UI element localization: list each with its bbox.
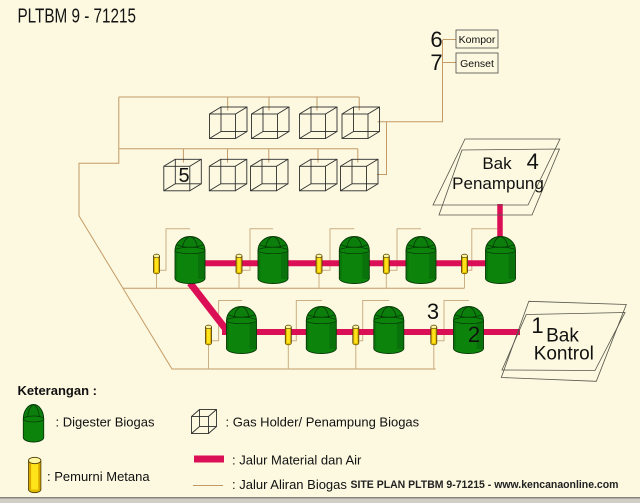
svg-text:4: 4 [527,149,539,174]
svg-text:Bak: Bak [482,154,512,173]
svg-text:1: 1 [531,313,543,338]
svg-text:PLTBM 9 - 71215: PLTBM 9 - 71215 [18,6,137,28]
svg-text:Penampung: Penampung [452,174,544,193]
svg-text:Kontrol: Kontrol [534,344,594,365]
svg-text:3: 3 [427,299,439,324]
svg-text:SITE PLAN PLTBM 9-71215 - www: SITE PLAN PLTBM 9-71215 - www.kencanaonl… [351,479,619,491]
svg-text:7: 7 [430,50,442,75]
svg-text:: Gas Holder/ Penampung Biogas: : Gas Holder/ Penampung Biogas [226,415,420,430]
svg-text:Genset: Genset [460,58,494,70]
svg-text:: Digester Biogas: : Digester Biogas [56,415,155,430]
svg-text:: Pemurni Metana: : Pemurni Metana [47,469,150,484]
svg-text:5: 5 [178,165,189,187]
svg-text:: Jalur Aliran Biogas: : Jalur Aliran Biogas [232,477,347,492]
svg-text:: Jalur Material dan Air: : Jalur Material dan Air [232,453,362,468]
svg-text:Keterangan :: Keterangan : [18,383,97,398]
svg-text:2: 2 [468,322,480,347]
svg-text:6: 6 [430,27,442,52]
svg-text:Kompor: Kompor [459,34,496,46]
